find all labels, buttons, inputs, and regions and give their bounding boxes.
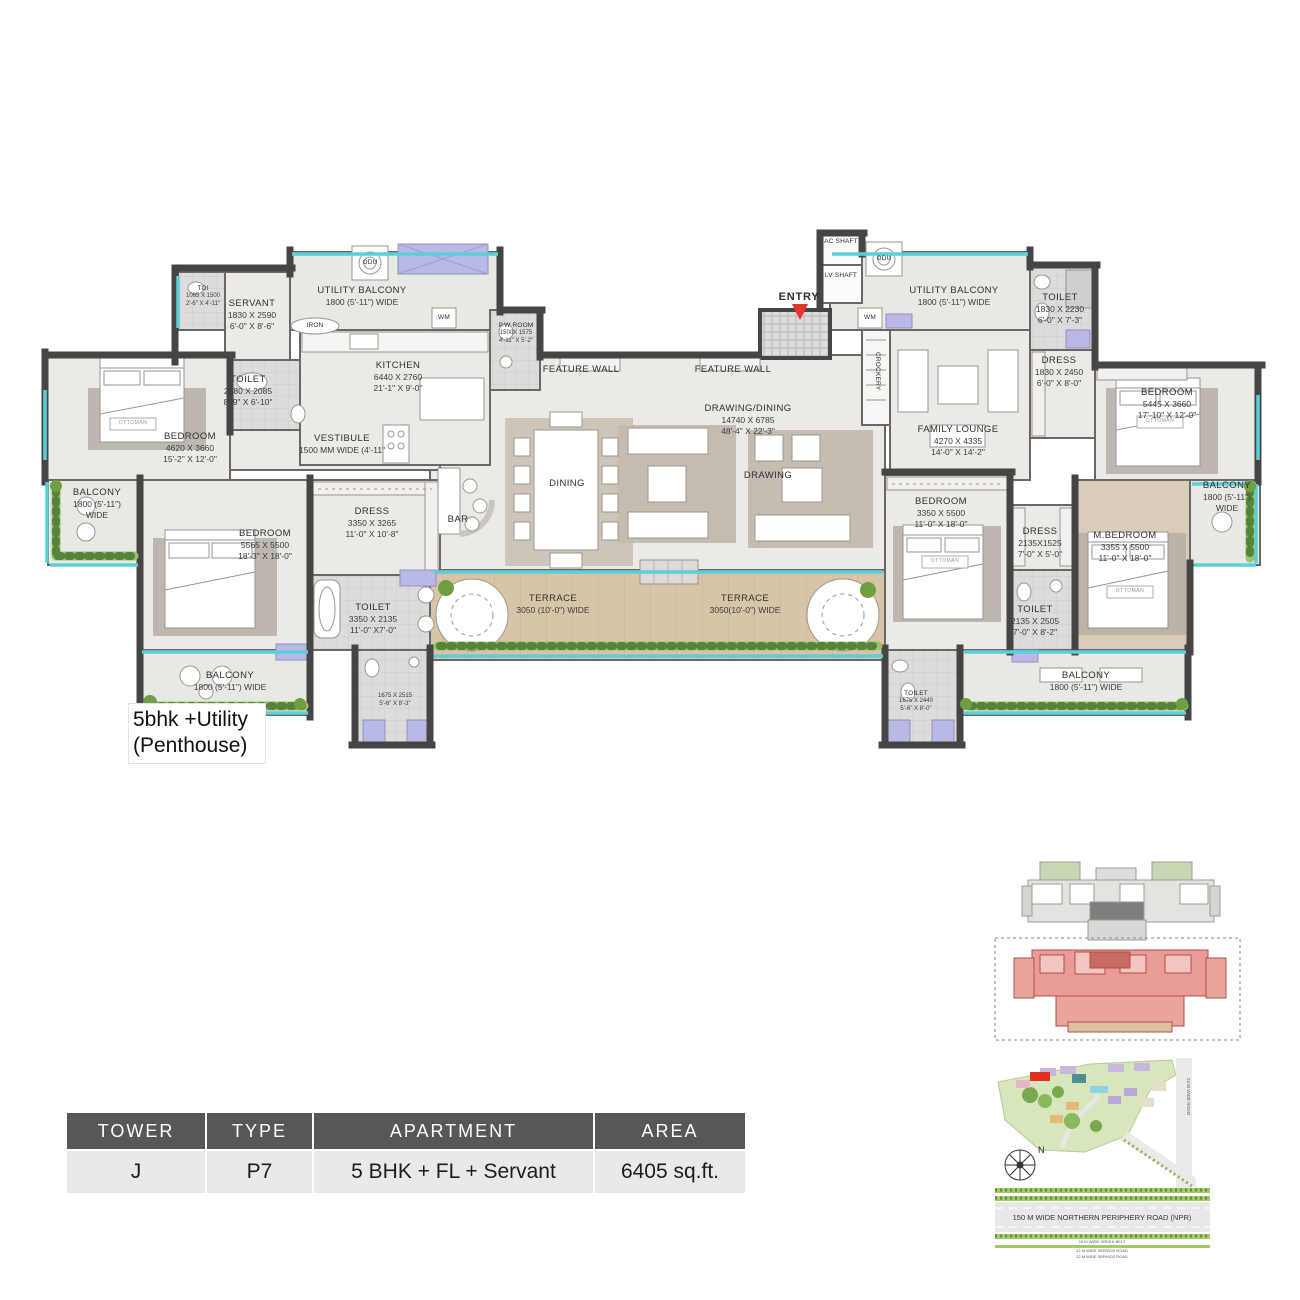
room-label-ac-shaft: AC SHAFT (824, 238, 858, 246)
room-label-toilet-m: TOILET2135 X 25057'-0" X 8'-2" (1011, 604, 1059, 638)
room-label-dress-r1: DRESS1830 X 24506'-0" X 8'-0" (1035, 355, 1083, 389)
room-label-utility-balcony-left: UTILITY BALCONY1800 (5'-11") WIDE (317, 285, 406, 308)
room-label-m-bedroom: M.BEDROOM3355 X 550011'-0" X 18'-0" (1093, 530, 1156, 564)
room-label-bar: BAR (448, 514, 469, 526)
room-label-dress-m: DRESS2135X15257'-0" X 5'-0" (1018, 526, 1062, 560)
room-label-odu-left: ODU (362, 259, 377, 267)
room-label-toilet-left-small: 1675 X 25155'-6" X 8'-3" (378, 693, 412, 708)
room-label-family-lounge: FAMILY LOUNGE4270 X 433514'-0" X 14'-2" (918, 424, 999, 458)
room-label-dining: DINING (549, 478, 585, 490)
room-label-bedroom5: BEDROOM3350 X 550011'-0" X 18'-0" (914, 496, 967, 530)
svg-text:16 M WIDE GREEN BELT: 16 M WIDE GREEN BELT (1079, 1239, 1126, 1244)
room-label-balcony-left: BALCONY1800 (5'-11")WIDE (73, 487, 121, 521)
floor-plan-graphic: 24 M WIDE ROAD N 150 M WIDE NORTHERN PER… (0, 0, 1300, 1300)
room-label-toi: TOI1065 X 15002'-6" X 4'-11" (186, 285, 220, 308)
svg-text:24 M WIDE ROAD: 24 M WIDE ROAD (1186, 1078, 1191, 1116)
room-label-balcony-bl: BALCONY1800 (5'-11") WIDE (194, 670, 267, 693)
room-label-crockery: CROCKERY (873, 352, 881, 390)
room-label-utility-balcony-right: UTILITY BALCONY1800 (5'-11") WIDE (909, 285, 998, 308)
room-label-drawing: DRAWING (744, 470, 792, 482)
svg-text:N: N (1038, 1145, 1045, 1155)
svg-text:12 M WIDE SERVICE ROAD: 12 M WIDE SERVICE ROAD (1076, 1248, 1128, 1253)
table-header-area: AREA (595, 1113, 745, 1149)
table-cell-type: P7 (207, 1151, 312, 1193)
room-label-iron: IRON (306, 322, 323, 330)
table-cell-tower: J (67, 1151, 205, 1193)
key-plan (995, 862, 1240, 1040)
room-label-toilet-servant: TOILET2680 X 20858'-9" X 6'-10" (224, 374, 273, 408)
room-label-kitchen: KITCHEN6440 X 276021'-1" X 9'-0" (374, 360, 423, 394)
table-cell-area: 6405 sq.ft. (595, 1151, 745, 1193)
table-header-tower: TOWER (67, 1113, 205, 1149)
room-label-drawing-dining: DRAWING/DINING14740 X 678548'-4" X 22'-3… (704, 403, 791, 437)
floorplan-page: 24 M WIDE ROAD N 150 M WIDE NORTHERN PER… (0, 0, 1300, 1300)
room-label-toilet3: TOILET3350 X 213511'-0" X7'-0" (349, 602, 397, 636)
ottoman-label-4: OTTOMAN (1116, 588, 1144, 595)
svg-text:150 M WIDE NORTHERN PERIPHERY: 150 M WIDE NORTHERN PERIPHERY ROAD (NPR) (1013, 1213, 1192, 1222)
ottoman-label-2: OTTOMAN (1146, 418, 1174, 425)
room-label-bedroom2: BEDROOM4620 X 366015'-2" X 12'-0" (163, 431, 217, 465)
room-label-terrace-right: TERRACE3050(10'-0") WIDE (710, 593, 781, 616)
ottoman-label-1: OTTOMAN (119, 420, 147, 427)
compass-icon: N (1005, 1145, 1045, 1180)
room-label-toilet-br: TOILET1675 X 24405'-6" X 8'-0" (899, 690, 933, 713)
ottoman-label-3: OTTOMAN (931, 558, 959, 565)
room-label-wm-right: WM (864, 314, 876, 322)
room-label-dress3: DRESS3350 X 326511'-0" X 10'-8" (345, 506, 398, 540)
table-cell-apartment: 5 BHK + FL + Servant (314, 1151, 593, 1193)
room-label-balcony-right: BALCONY1800 (5'-11")WIDE (1203, 480, 1251, 514)
room-label-pw-room: P.W ROOM1500X 15754'-11" X 5'-2" (498, 322, 533, 345)
room-label-lv-shaft: LV SHAFT (824, 272, 858, 280)
room-label-bedroom4: BEDROOM5445 X 366017'-10" X 12'-0" (1138, 387, 1196, 421)
table-header-apartment: APARTMENT (314, 1113, 593, 1149)
plan-type-label: 5bhk +Utility (Penthouse) (128, 703, 266, 764)
room-label-wm-left: WM (438, 314, 450, 322)
room-label-servant: SERVANT1830 X 25906'-0" X 8'-6" (228, 298, 276, 332)
room-label-toilet-r1: TOILET1830 X 22306'-0" X 7'-3" (1036, 292, 1084, 326)
room-label-feature-wall-left: FEATURE WALL (543, 364, 620, 376)
room-label-odu-right: ODU (876, 255, 891, 263)
room-label-vestibule: VESTIBULE1500 MM WIDE (4'-11" (299, 433, 385, 456)
room-label-feature-wall-right: FEATURE WALL (695, 364, 772, 376)
site-plan: 24 M WIDE ROAD N 150 M WIDE NORTHERN PER… (995, 1058, 1210, 1259)
room-label-terrace-left: TERRACE3050 (10'-0") WIDE (516, 593, 589, 616)
table-header-type: TYPE (207, 1113, 312, 1149)
room-label-bedroom3: BEDROOM5565 X 550018'-3" X 18'-0" (238, 528, 292, 562)
unit-info-table: TOWER TYPE APARTMENT AREA J P7 5 BHK + F… (67, 1113, 745, 1193)
room-label-balcony-br: BALCONY1800 (5'-11") WIDE (1050, 670, 1123, 693)
svg-text:12 M WIDE SERVICE ROAD: 12 M WIDE SERVICE ROAD (1076, 1254, 1128, 1259)
entry-label: ENTRY (779, 290, 820, 304)
